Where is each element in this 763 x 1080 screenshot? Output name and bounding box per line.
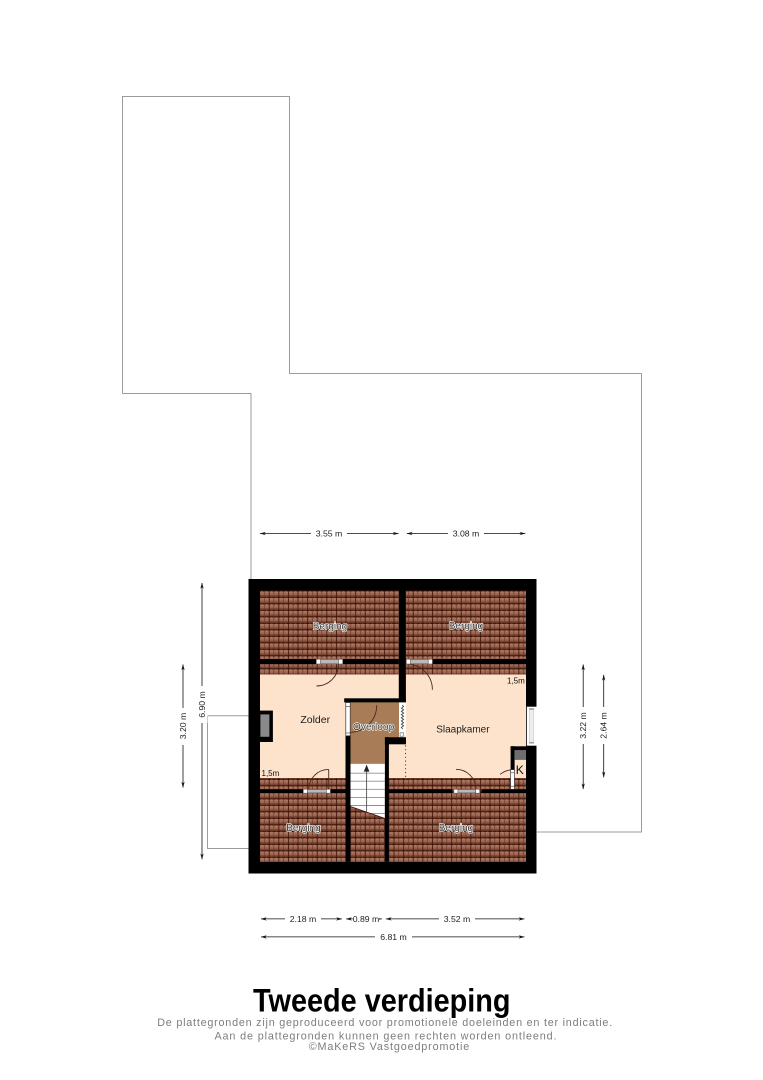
svg-text:Berging: Berging [439, 823, 473, 834]
svg-text:Overloop: Overloop [353, 722, 395, 733]
svg-text:Berging: Berging [286, 823, 320, 834]
svg-text:3.22 m: 3.22 m [578, 712, 588, 739]
svg-text:3.52 m: 3.52 m [444, 914, 471, 924]
svg-text:0.89 m: 0.89 m [353, 914, 380, 924]
svg-text:Berging: Berging [313, 622, 347, 633]
svg-text:De plattegronden zijn geproduc: De plattegronden zijn geproduceerd voor … [157, 1017, 612, 1029]
svg-text:3.55 m: 3.55 m [316, 529, 343, 539]
svg-text:2.64 m: 2.64 m [599, 712, 609, 739]
svg-text:1,5m: 1,5m [507, 676, 525, 685]
svg-text:Tweede verdieping: Tweede verdieping [253, 983, 511, 1019]
svg-text:K: K [516, 763, 524, 777]
svg-text:3.08 m: 3.08 m [453, 529, 480, 539]
svg-text:6.90 m: 6.90 m [197, 691, 207, 718]
svg-text:Slaapkamer: Slaapkamer [436, 725, 490, 736]
svg-text:2.18 m: 2.18 m [290, 914, 317, 924]
svg-text:1,5m: 1,5m [262, 769, 280, 778]
svg-text:Zolder: Zolder [300, 714, 330, 726]
svg-text:3.20 m: 3.20 m [178, 713, 188, 740]
svg-text:6.81 m: 6.81 m [380, 932, 407, 942]
svg-text:Berging: Berging [449, 621, 483, 632]
svg-text:©MaKeRS Vastgoedpromotie: ©MaKeRS Vastgoedpromotie [309, 1041, 470, 1053]
